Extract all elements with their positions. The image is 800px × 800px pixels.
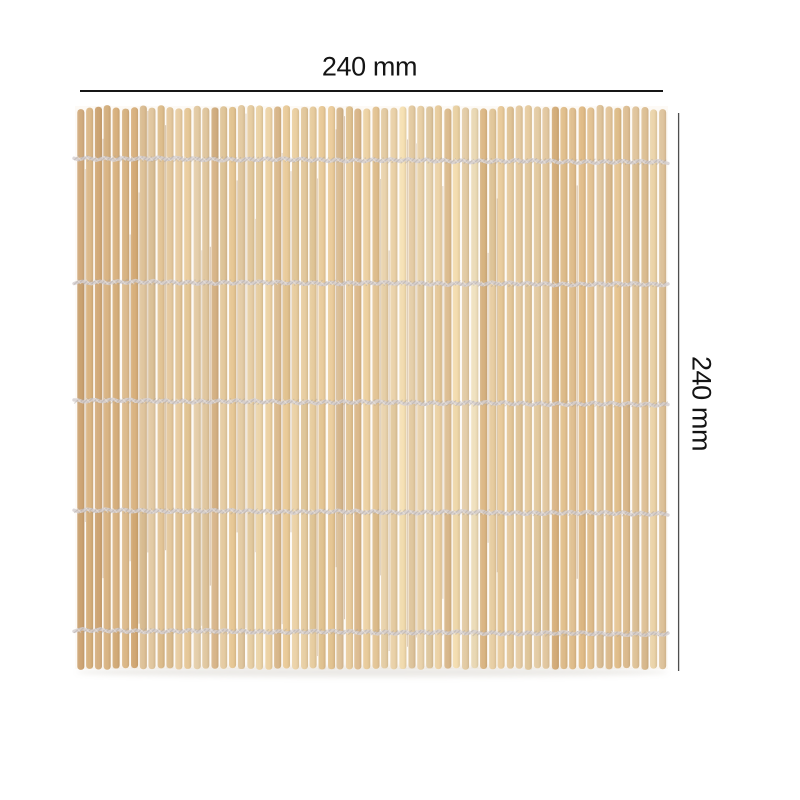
- svg-text:240 mm: 240 mm: [322, 52, 417, 82]
- svg-text:240 mm: 240 mm: [687, 356, 717, 451]
